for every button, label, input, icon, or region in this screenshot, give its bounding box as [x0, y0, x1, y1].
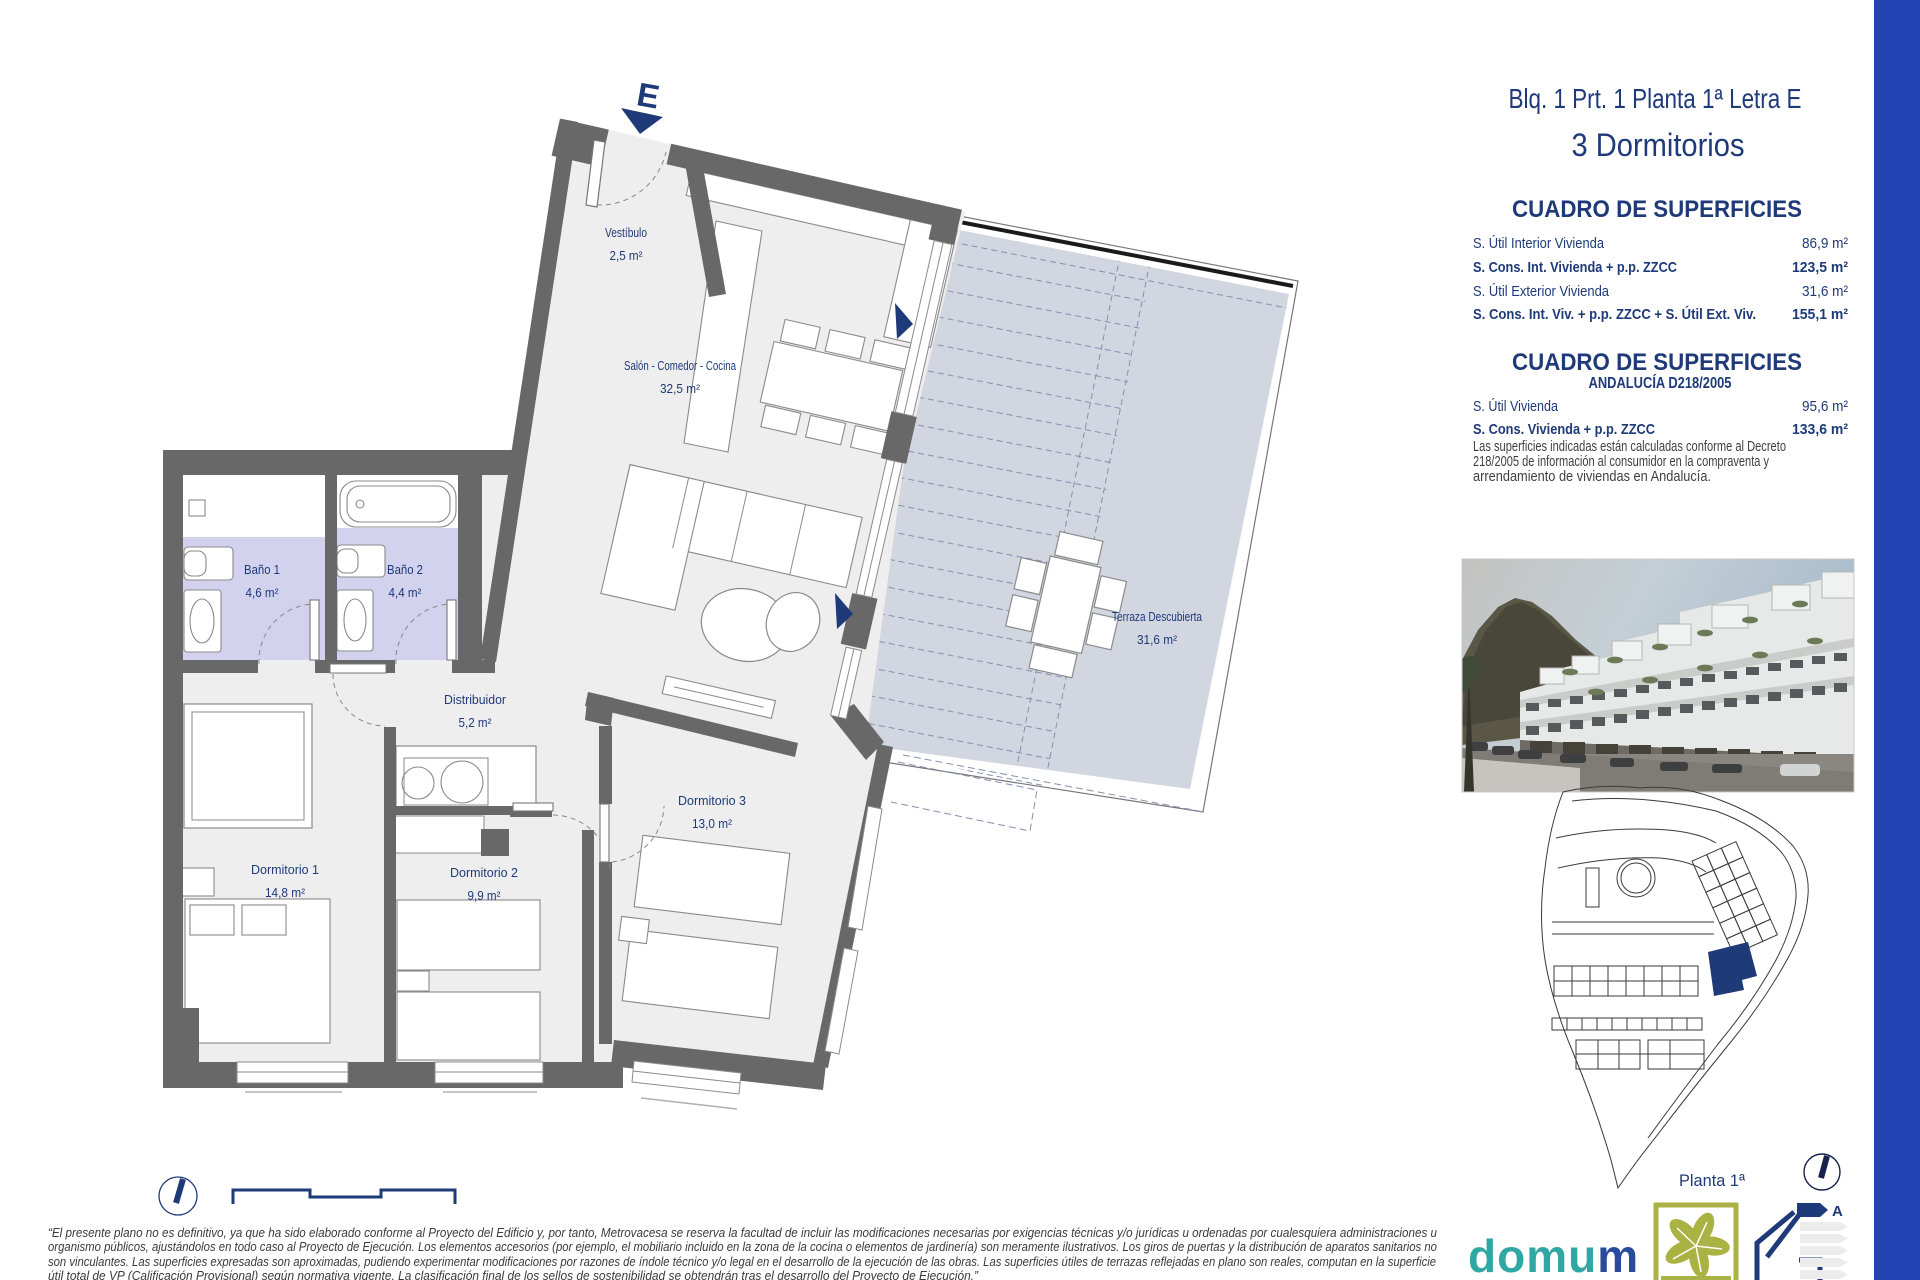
svg-text:son vinculantes. Las superfici: son vinculantes. Las superficies expresa…: [48, 1254, 1436, 1269]
svg-text:CUADRO DE SUPERFICIES: CUADRO DE SUPERFICIES: [1512, 196, 1802, 223]
svg-text:Dormitorio 1: Dormitorio 1: [251, 862, 319, 877]
svg-text:E: E: [634, 75, 662, 115]
svg-text:Terraza Descubierta: Terraza Descubierta: [1112, 609, 1203, 624]
svg-text:organismo públicos, ajustándol: organismo públicos, ajustándolos en todo…: [48, 1239, 1437, 1254]
svg-text:S. Cons. Vivienda + p.p. ZZCC: S. Cons. Vivienda + p.p. ZZCC: [1473, 421, 1655, 438]
svg-text:S. Cons. Int. Vivienda + p.p.: S. Cons. Int. Vivienda + p.p. ZZCC: [1473, 259, 1677, 276]
svg-text:“El presente plano no es defin: “El presente plano no es definitivo, ya …: [48, 1225, 1437, 1240]
svg-text:Vestíbulo: Vestíbulo: [605, 225, 647, 240]
svg-text:5,2 m²: 5,2 m²: [459, 715, 493, 730]
svg-text:A: A: [1832, 1203, 1843, 1220]
svg-text:2,5 m²: 2,5 m²: [610, 248, 644, 263]
svg-text:Planta 1ª: Planta 1ª: [1679, 1171, 1746, 1190]
svg-text:S. Útil Vivienda: S. Útil Vivienda: [1473, 398, 1559, 415]
svg-text:domum: domum: [1468, 1230, 1639, 1280]
svg-text:14,8 m²: 14,8 m²: [265, 885, 306, 900]
svg-text:3 Dormitorios: 3 Dormitorios: [1572, 127, 1745, 163]
svg-text:123,5 m²: 123,5 m²: [1792, 259, 1848, 276]
svg-text:arrendamiento de viviendas en: arrendamiento de viviendas en Andalucía.: [1473, 468, 1711, 485]
svg-text:S. Cons. Int. Viv. + p.p. ZZCC: S. Cons. Int. Viv. + p.p. ZZCC + S. Útil…: [1473, 305, 1756, 323]
svg-text:Salón - Comedor - Cocina: Salón - Comedor - Cocina: [624, 358, 737, 373]
svg-text:útil total de VP (Calificación: útil total de VP (Calificación Provision…: [48, 1268, 979, 1280]
svg-text:4,4 m²: 4,4 m²: [389, 585, 423, 600]
svg-text:S. Útil Interior Vivienda: S. Útil Interior Vivienda: [1473, 235, 1605, 252]
svg-text:ANDALUCÍA D218/2005: ANDALUCÍA D218/2005: [1589, 375, 1732, 392]
svg-text:Dormitorio 2: Dormitorio 2: [450, 865, 518, 880]
svg-text:4,6 m²: 4,6 m²: [246, 585, 280, 600]
svg-text:Blq. 1 Prt. 1 Planta 1ª Letra: Blq. 1 Prt. 1 Planta 1ª Letra E: [1509, 83, 1802, 114]
svg-text:Dormitorio 3: Dormitorio 3: [678, 793, 746, 808]
svg-text:31,6 m²: 31,6 m²: [1802, 283, 1848, 300]
svg-text:155,1 m²: 155,1 m²: [1792, 306, 1848, 323]
svg-text:86,9 m²: 86,9 m²: [1802, 235, 1848, 252]
svg-text:Distribuidor: Distribuidor: [444, 692, 507, 707]
svg-text:95,6 m²: 95,6 m²: [1802, 398, 1848, 415]
svg-text:Baño 1: Baño 1: [244, 562, 280, 577]
svg-text:CUADRO DE SUPERFICIES: CUADRO DE SUPERFICIES: [1512, 349, 1802, 376]
svg-text:Baño 2: Baño 2: [387, 562, 423, 577]
svg-text:31,6 m²: 31,6 m²: [1137, 632, 1178, 647]
svg-text:32,5 m²: 32,5 m²: [660, 381, 701, 396]
svg-text:9,9 m²: 9,9 m²: [468, 888, 502, 903]
svg-text:S. Útil Exterior Vivienda: S. Útil Exterior Vivienda: [1473, 283, 1610, 300]
svg-text:13,0 m²: 13,0 m²: [692, 816, 733, 831]
svg-text:133,6 m²: 133,6 m²: [1792, 421, 1848, 438]
